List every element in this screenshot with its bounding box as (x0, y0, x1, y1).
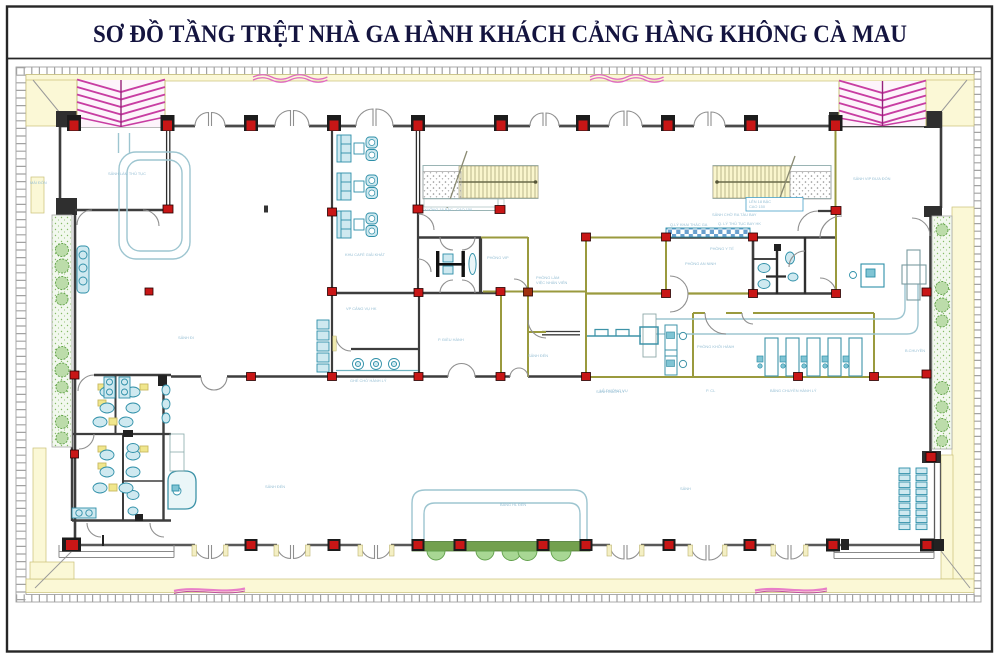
svg-text:SẢNH LÀM THỦ TỤC: SẢNH LÀM THỦ TỤC (108, 171, 146, 176)
svg-text:SƠ ĐỒ TẦNG TRỆT NHÀ GA HÀNH KH: SƠ ĐỒ TẦNG TRỆT NHÀ GA HÀNH KHÁCH CẢNG H… (93, 19, 907, 48)
svg-text:PHÒNG VIP: PHÒNG VIP (487, 255, 509, 260)
svg-text:PHÒNG KHỞI HÀNH: PHÒNG KHỞI HÀNH (697, 344, 734, 349)
svg-text:SẢNH: SẢNH (680, 486, 691, 491)
svg-text:SẢNH VIP ĐƯA ĐÓN: SẢNH VIP ĐƯA ĐÓN (853, 176, 891, 181)
svg-text:P. ĐIỀU HÀNH: P. ĐIỀU HÀNH (438, 337, 464, 342)
svg-text:Q.LÝ KHAI THÁC GA: Q.LÝ KHAI THÁC GA (670, 222, 708, 227)
svg-text:SẢNH CHỜ RA TÀU BAY: SẢNH CHỜ RA TÀU BAY (712, 212, 757, 217)
svg-text:BĂNG CHUYỀN HÀNH LÝ: BĂNG CHUYỀN HÀNH LÝ (770, 388, 817, 393)
svg-text:BĂNG HL ĐẾN: BĂNG HL ĐẾN (500, 502, 526, 507)
svg-text:B.CHUYỀN: B.CHUYỀN (905, 348, 925, 353)
svg-text:P. CL: P. CL (706, 388, 716, 393)
svg-text:CAO 150: CAO 150 (749, 204, 766, 209)
svg-text:MÁI ĐÓN: MÁI ĐÓN (30, 180, 47, 185)
svg-text:SẢNH CÁCH LY: SẢNH CÁCH LY (596, 389, 625, 394)
svg-text:XUỐNG 18 BẬC - CAO 150: XUỐNG 18 BẬC - CAO 150 (424, 207, 473, 212)
svg-text:GHẾ CHỜ HÀNH LÝ: GHẾ CHỜ HÀNH LÝ (350, 378, 387, 383)
svg-text:SẢNH ĐẾN: SẢNH ĐẾN (265, 484, 285, 489)
svg-text:SẢNH ĐẾN: SẢNH ĐẾN (528, 353, 548, 358)
svg-text:KHU CAFÉ GIẢI KHÁT: KHU CAFÉ GIẢI KHÁT (345, 252, 386, 257)
svg-text:VIỆC NHÂN VIÊN: VIỆC NHÂN VIÊN (536, 280, 568, 285)
svg-text:SẢNH ĐI: SẢNH ĐI (178, 335, 194, 340)
svg-text:VP CẢNG VỤ HK: VP CẢNG VỤ HK (346, 306, 377, 311)
svg-text:Q. LÝ THỦ TỤC BAY HK: Q. LÝ THỦ TỤC BAY HK (718, 221, 761, 226)
svg-text:PHÒNG Y TẾ: PHÒNG Y TẾ (710, 246, 734, 251)
svg-text:PHÒNG AN NINH: PHÒNG AN NINH (685, 261, 716, 266)
